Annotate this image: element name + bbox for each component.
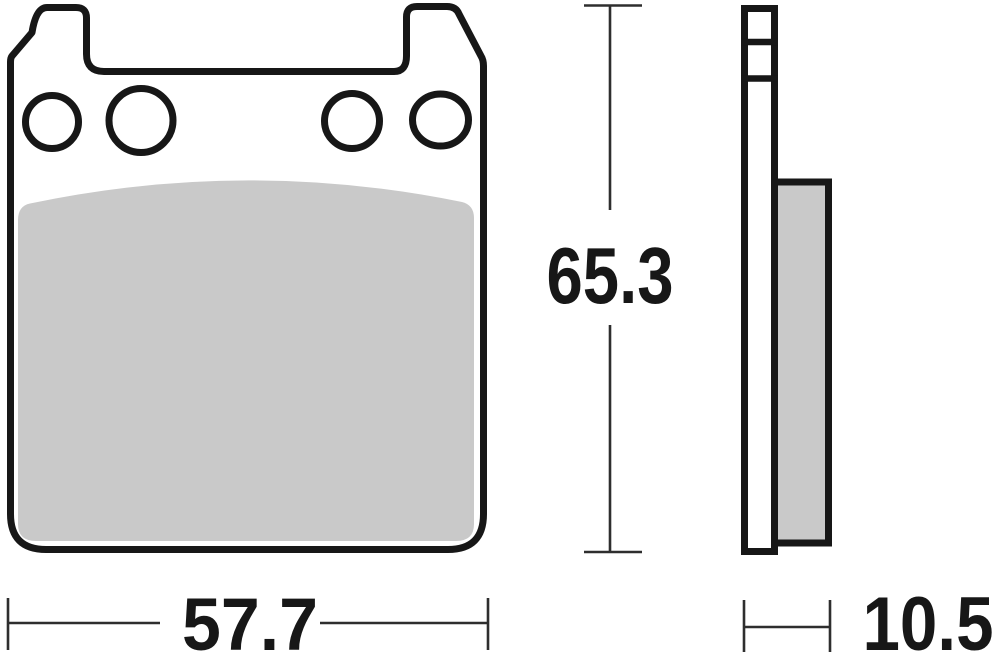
friction-material-side (772, 182, 829, 543)
mounting-hole-1 (26, 96, 79, 149)
height-dimension-label: 65.3 (547, 231, 674, 320)
mounting-hole-3 (325, 94, 380, 149)
width-dimension-label: 57.7 (182, 583, 318, 652)
technical-drawing-canvas: 65.3 57.7 10.5 (0, 0, 1000, 652)
thickness-dimension (744, 600, 830, 652)
backing-plate-side (745, 9, 775, 552)
mounting-hole-4 (413, 94, 469, 146)
technical-drawing-page: 65.3 57.7 10.5 (0, 0, 1000, 652)
mounting-hole-2 (109, 89, 173, 153)
thickness-dimension-label: 10.5 (863, 582, 994, 652)
brake-pad-side-view (741, 9, 829, 552)
friction-material-front (18, 180, 474, 541)
brake-pad-front-view (11, 7, 484, 550)
